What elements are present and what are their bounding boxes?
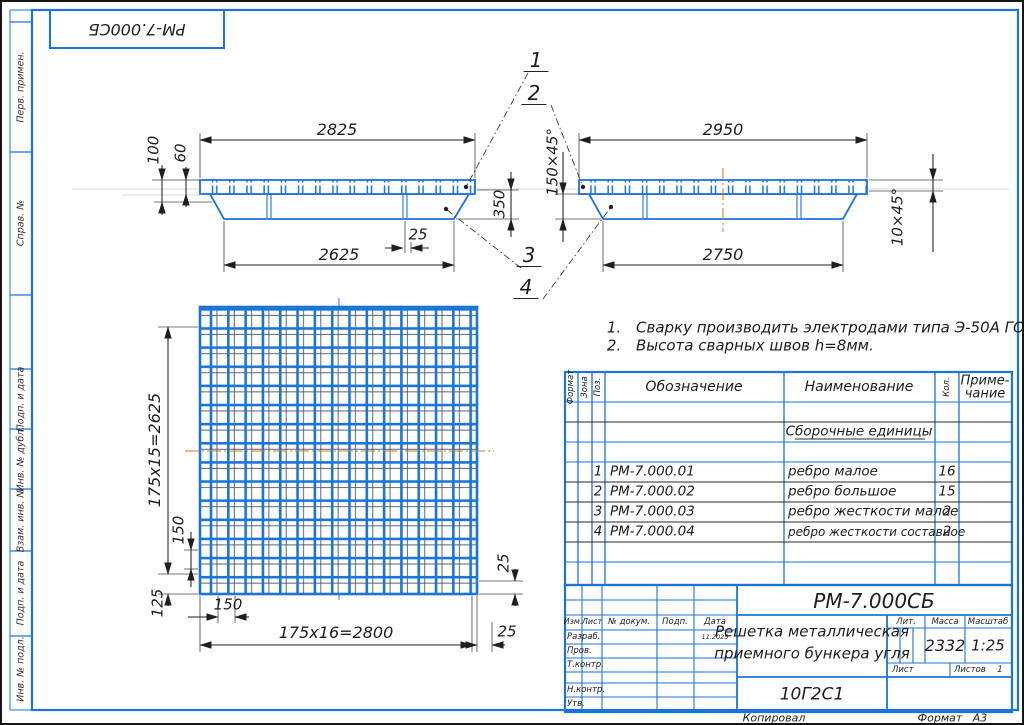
format-value: А3 (973, 713, 988, 724)
spec-header-pos: Поз. (594, 378, 603, 397)
dim-right-top: 2950 (703, 122, 744, 138)
titleblock-label-podp: Подп. (662, 618, 688, 627)
drawing-sheet: РМ-7.000СБ Перв. примен. Справ. № Подп. … (0, 0, 1024, 725)
top-stamp-designation: РМ-7.000СБ (88, 21, 185, 37)
margin-label-sprav-no: Справ. № (16, 200, 26, 246)
left-view (200, 180, 475, 219)
spec-row2-designation: РМ-7.000.02 (610, 485, 695, 499)
titleblock-label-izm: Изм. (564, 618, 583, 626)
margin-label-inv-dubl: Инв. № дубл. (16, 427, 26, 492)
dim-right-bottom: 2750 (703, 247, 744, 263)
copied-label: Копировал (743, 713, 806, 724)
spec-row4-pos: 4 (594, 525, 603, 539)
spec-row1-designation: РМ-7.000.01 (610, 465, 695, 479)
dim-plan-margin: 125 (151, 589, 166, 618)
titleblock-label-list2: Лист (892, 666, 914, 675)
dim-left-bottom: 2625 (319, 247, 360, 263)
dim-depth: 350 (493, 190, 508, 219)
dim-left-offset: 25 (408, 228, 427, 243)
titleblock-label-utv: Утв. (567, 700, 585, 709)
dim-plan-bottom: 175x16=2800 (279, 625, 394, 641)
spec-header-format: Формат (567, 370, 576, 405)
titleblock-label-masshtab: Масштаб (968, 618, 1008, 627)
callout-4: 4 (514, 277, 539, 299)
titleblock-label-doc: № докум. (608, 618, 650, 627)
dim-plan-edge-h: 25 (497, 625, 516, 640)
spec-row4-name: ребро жесткости составное (788, 526, 965, 538)
titleblock-label-prov: Пров. (567, 647, 592, 656)
margin-label-vzam-inv: Взам. инв. № (16, 488, 26, 553)
spec-row4-designation: РМ-7.000.04 (610, 525, 695, 539)
dim-left-top: 2825 (317, 122, 358, 138)
dim-chamfer-right: 10×45° (891, 188, 906, 246)
spec-row2-qty: 15 (938, 485, 955, 499)
dim-height-bar: 60 (174, 143, 189, 162)
spec-row3-designation: РМ-7.000.03 (610, 505, 695, 519)
spec-row1-name: ребро малое (788, 465, 878, 479)
titleblock-label-listov: Листов (954, 666, 986, 675)
titleblock-label-list: Лист (582, 618, 602, 626)
plan-view (185, 298, 494, 604)
dim-chamfer-left: 150×45° (546, 128, 561, 196)
margin-label-perv-primen: Перв. примен. (16, 51, 26, 122)
titleblock-massa-value: 2332 (925, 638, 966, 654)
spec-header-designation: Обозначение (645, 380, 742, 394)
titleblock-label-lit: Лит. (896, 618, 916, 627)
right-view (579, 168, 867, 232)
left-view-trapezoid (210, 194, 469, 219)
note-2-text: Высота сварных швов h=8мм. (636, 339, 874, 354)
spec-header-note-line2: чание (965, 388, 1006, 401)
dim-height-outer: 100 (147, 136, 162, 165)
titleblock-designation: РМ-7.000СБ (813, 591, 934, 611)
titleblock-masshtab-value: 1:25 (971, 639, 1005, 654)
dim-plan-pitch-v: 150 (172, 516, 187, 545)
titleblock-label-massa: Масса (931, 618, 958, 627)
titleblock-label-razrab: Разраб. (567, 633, 600, 642)
spec-header-name: Наименование (805, 380, 914, 394)
spec-row3-pos: 3 (594, 505, 603, 519)
titleblock-label-tkontr: Т.контр. (567, 661, 604, 670)
titleblock-label-nkontr: Н.контр. (567, 686, 605, 695)
titleblock-listov-value: 1 (997, 666, 1002, 675)
spec-header-qty: Кол. (943, 377, 952, 396)
titleblock-material: 10Г2С1 (780, 687, 845, 704)
spec-row1-pos: 1 (594, 465, 603, 479)
spec-header-zone: Зона (581, 376, 590, 397)
callout-2: 2 (522, 83, 547, 105)
titleblock-label-data: Дата (704, 618, 726, 627)
titleblock-title-line2: приемного бункера угля (714, 647, 910, 662)
margin-label-podp-data-2: Подп. и дата (16, 561, 26, 626)
margin-label-inv-podl: Инв. № подл. (16, 636, 26, 702)
spec-row1-qty: 16 (938, 465, 955, 479)
titleblock-title-line1: Решетка металлическая (715, 625, 909, 640)
left-view-grating-bar (200, 180, 475, 194)
dim-plan-edge-v: 25 (497, 553, 512, 572)
spec-row2-pos: 2 (594, 485, 603, 499)
note-1-number: 1. (607, 321, 621, 336)
spec-row2-name: ребро большое (788, 485, 896, 499)
spec-row4-qty: 2 (943, 525, 952, 539)
format-label: Формат (918, 713, 963, 724)
dim-plan-pitch-h: 150 (214, 598, 243, 613)
callout-1: 1 (524, 50, 549, 72)
callout-3: 3 (517, 245, 542, 267)
dim-plan-left: 175x15=2625 (147, 393, 163, 508)
margin-label-podp-data-1: Подп. и дата (16, 367, 26, 432)
titleblock-date-value: 11.2025 (702, 634, 729, 641)
spec-section-title: Сборочные единицы (786, 425, 933, 439)
spec-row3-qty: 2 (943, 505, 952, 519)
note-1-text: Сварку производить электродами типа Э-50… (636, 321, 1024, 336)
spec-row3-name: ребро жесткости малое (788, 505, 959, 519)
note-2-number: 2. (607, 339, 621, 354)
